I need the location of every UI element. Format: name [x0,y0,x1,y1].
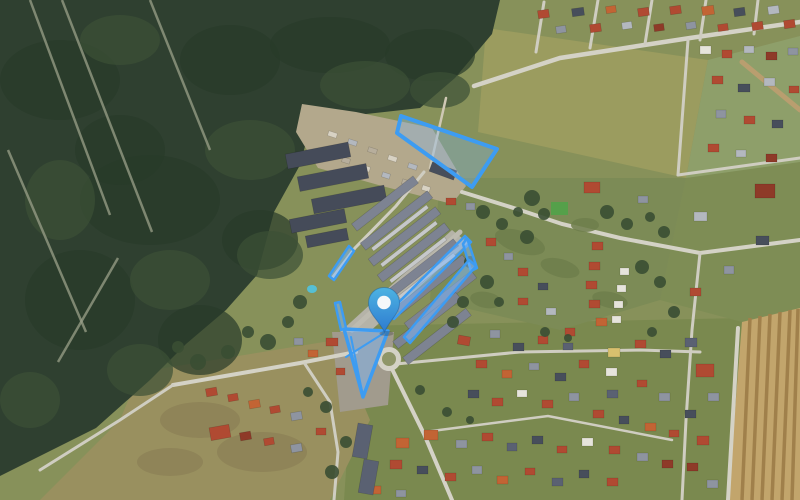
pin-shadow [380,331,394,336]
building [662,460,673,468]
building [764,78,775,86]
tree [668,306,680,318]
building [227,393,238,402]
building [396,438,409,448]
building [482,433,493,441]
building [687,463,698,471]
building [546,308,556,315]
building [538,283,548,290]
building [552,478,563,486]
building [537,9,549,18]
building [607,390,618,398]
building [744,46,754,53]
tree [260,334,276,350]
building [239,431,251,441]
building [596,318,607,326]
building [557,446,567,453]
pool [307,285,317,293]
building [766,154,777,162]
building [772,120,783,128]
building [685,410,696,418]
tree [340,436,352,448]
building [733,7,745,16]
building [686,21,697,29]
building [589,262,600,270]
building [589,23,601,32]
tree [293,295,307,309]
building [712,76,723,84]
building [308,350,318,357]
building [660,350,671,358]
satellite-canvas[interactable] [0,0,800,500]
building [424,430,438,440]
building [620,268,629,275]
building [326,338,338,346]
building [744,116,755,124]
building [417,466,428,474]
building [617,285,626,292]
building [707,480,718,488]
building [517,390,527,397]
building [788,48,798,55]
building [290,443,302,453]
building [504,253,513,260]
building [606,368,617,376]
building [468,390,479,398]
building [619,416,629,424]
building [654,23,665,31]
building [466,203,475,210]
building [579,470,589,478]
building [572,7,585,17]
tree [320,401,332,413]
tree [647,327,657,337]
tree [242,326,254,338]
building [205,387,217,397]
building [694,212,707,221]
tree [538,208,550,220]
tree [325,465,339,479]
building [390,460,402,469]
building [538,336,548,344]
building [586,281,597,289]
building [608,348,620,357]
tree [447,316,459,328]
building [767,5,779,14]
building [290,411,302,421]
building [486,238,496,246]
building [502,370,512,378]
building [579,360,589,368]
building [701,5,714,16]
tree [442,407,452,417]
tree [480,275,494,289]
tree [564,334,572,342]
building [669,5,681,14]
building [685,338,697,347]
building [645,423,656,431]
building [716,110,726,118]
building [336,368,345,375]
building [589,300,600,308]
building [756,236,769,245]
tree [524,190,540,206]
building [738,84,750,92]
building [700,46,711,54]
building [518,298,528,305]
building [457,335,470,346]
building [635,340,646,348]
pin-dot [377,296,391,310]
building [708,393,719,401]
building [722,50,732,58]
building [697,436,709,445]
building [766,52,777,60]
building [248,399,260,409]
building [492,398,503,406]
building [690,288,701,296]
building [497,476,508,484]
tree [282,316,294,328]
building [316,428,326,435]
building [637,453,648,461]
building [396,490,406,497]
building [696,364,714,377]
building [783,19,795,28]
building [269,405,280,414]
building [563,343,573,350]
building [612,316,621,323]
building [456,440,467,448]
building [490,330,500,338]
tree [513,207,523,217]
building [263,437,274,446]
building [638,196,648,203]
tree [496,218,508,230]
building [637,7,649,16]
building [736,150,746,157]
building [507,443,517,451]
building [609,446,620,454]
roundabout-circle [380,350,399,369]
tree [457,296,469,308]
tree [476,205,490,219]
building [542,400,553,408]
building [476,360,487,368]
building [518,268,528,276]
tree [540,327,550,337]
building [445,473,456,481]
building [637,380,647,387]
building [592,242,603,250]
building [529,363,539,370]
tree [303,387,313,397]
building [755,184,775,198]
tree [600,205,614,219]
building [582,438,593,446]
tree [190,354,206,370]
satellite-map[interactable]: Satellite map with location pin and sele… [0,0,800,500]
tree [221,345,235,359]
tree [466,416,474,424]
building [724,266,734,274]
playground [551,202,568,215]
tree [654,276,666,288]
building [446,198,456,205]
building [789,86,799,93]
building [718,23,729,31]
tree [621,218,633,230]
building [294,338,303,345]
building [593,410,604,418]
building [569,393,579,401]
building [556,25,567,33]
building [751,21,763,30]
tree [635,260,649,274]
building [472,466,482,474]
tree [415,385,425,395]
building [525,468,535,475]
tree [520,230,534,244]
building [659,393,670,401]
building [584,182,600,193]
building [555,373,566,381]
building [532,436,543,444]
building [614,301,623,308]
building [513,343,524,351]
tree [658,226,670,238]
building [669,430,679,437]
building [622,21,633,29]
tree [494,297,504,307]
building [606,5,617,13]
tree [645,212,655,222]
building [607,478,618,486]
tree [172,341,184,353]
roundabout [380,350,399,369]
building [708,144,719,152]
